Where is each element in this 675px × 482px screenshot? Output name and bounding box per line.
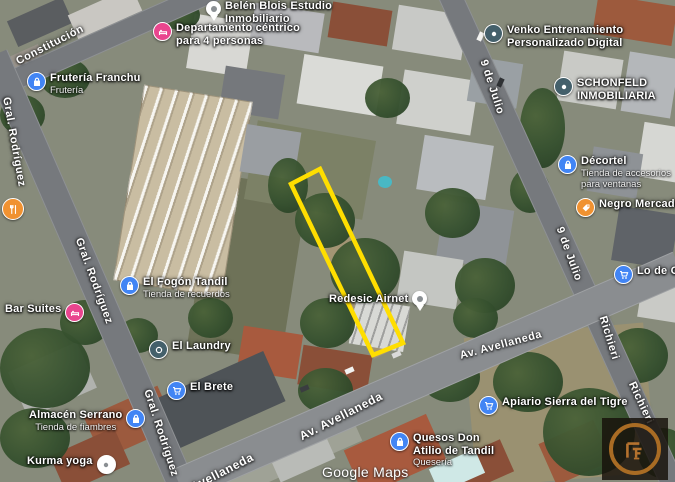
shop-bag-icon[interactable] <box>390 432 409 451</box>
laundry-icon[interactable] <box>149 340 168 359</box>
place-title[interactable]: Apiario Sierra del Tigre <box>502 396 628 409</box>
place-apiario-sierra-del-tigre[interactable]: Apiario Sierra del Tigre <box>479 396 628 415</box>
terrain-patch <box>378 176 392 188</box>
place-title[interactable]: Quesos Don <box>413 432 494 445</box>
place-title-line2[interactable]: para 4 personas <box>176 35 300 48</box>
place-title[interactable]: Kurma yoga <box>27 455 93 468</box>
place-title[interactable]: Venko Entrenamiento <box>507 24 623 37</box>
place-title[interactable]: Lo de Oli <box>637 265 675 278</box>
shop-tag-icon[interactable] <box>576 198 595 217</box>
place-title[interactable]: El Fogón Tandil <box>143 276 230 289</box>
map-pin-icon[interactable] <box>412 291 427 306</box>
place-el-fogon-tandil[interactable]: El Fogón Tandil Tienda de recuerdos <box>120 276 230 300</box>
restaurant-icon[interactable] <box>2 198 24 220</box>
place-title[interactable]: Bar Suites <box>5 303 61 316</box>
place-title[interactable]: El Laundry <box>172 340 231 353</box>
tree-canopy <box>365 78 410 118</box>
place-redesic-airnet[interactable]: Redesic Airnet <box>329 293 427 306</box>
place-subtitle: Frutería <box>50 85 141 96</box>
shop-bag-icon[interactable] <box>27 72 46 91</box>
shop-bag-icon[interactable] <box>120 276 139 295</box>
shopping-cart-icon[interactable] <box>167 381 186 400</box>
place-lo-de-oli[interactable]: Lo de Oli <box>614 265 675 284</box>
place-venko-entrenamiento[interactable]: Venko Entrenamiento Personalizado Digita… <box>484 24 623 49</box>
place-bar-suites[interactable]: Bar Suites <box>5 303 84 322</box>
place-subtitle: Tienda de recuerdos <box>143 289 230 300</box>
terrain-patch <box>349 298 411 352</box>
place-title[interactable]: Almacén Serrano <box>29 409 122 422</box>
place-title[interactable]: SCHONFELD <box>577 77 656 90</box>
generic-place-icon[interactable] <box>97 455 116 474</box>
place-title[interactable]: Redesic Airnet <box>329 293 408 306</box>
shop-bag-icon[interactable] <box>558 155 577 174</box>
shopping-cart-icon[interactable] <box>479 396 498 415</box>
place-el-brete[interactable]: El Brete <box>167 381 233 400</box>
shopping-cart-icon[interactable] <box>614 265 633 284</box>
place-title-line2[interactable]: INMOBILIARIA <box>577 90 656 103</box>
place-title[interactable]: Belén Blois Estudio <box>225 0 332 13</box>
shop-bag-icon[interactable] <box>126 409 145 428</box>
place-negro-mercado[interactable]: Negro Mercado C <box>576 198 675 217</box>
business-dot-icon[interactable] <box>554 77 573 96</box>
place-title-line2[interactable]: Atilio de Tandil <box>413 445 494 458</box>
place-fruteria-franchu[interactable]: Frutería Franchu Frutería <box>27 72 141 96</box>
map-pin-icon[interactable] <box>206 1 221 16</box>
terrain-patch <box>328 2 393 47</box>
place-decortel[interactable]: Décortel Tienda de accesorios para venta… <box>558 155 671 190</box>
place-almacen-serrano[interactable]: Almacén Serrano Tienda de fiambres <box>29 409 145 433</box>
terrain-patch <box>391 350 401 358</box>
place-title[interactable]: Negro Mercado C <box>599 198 675 211</box>
business-dot-icon[interactable] <box>484 24 503 43</box>
place-kurma-yoga[interactable]: Kurma yoga <box>27 455 116 474</box>
place-subtitle: Tienda de accesorios <box>581 168 671 179</box>
tree-canopy <box>295 193 355 248</box>
place-subtitle-line2: para ventanas <box>581 179 671 190</box>
place-title[interactable]: Departamento céntrico <box>176 22 300 35</box>
tree-canopy <box>188 298 233 338</box>
tree-canopy <box>425 188 480 238</box>
lodging-icon[interactable] <box>65 303 84 322</box>
place-restaurant-unlabeled[interactable] <box>2 198 24 220</box>
google-maps-attribution: Google Maps <box>322 464 409 480</box>
place-departamento-centrico[interactable]: Departamento céntrico para 4 personas <box>153 22 300 47</box>
place-title[interactable]: Frutería Franchu <box>50 72 141 85</box>
brand-monogram-icon <box>609 423 661 475</box>
lodging-icon[interactable] <box>153 22 172 41</box>
brand-watermark-logo <box>602 418 668 480</box>
place-title[interactable]: El Brete <box>190 381 233 394</box>
place-subtitle: Quesería <box>413 457 494 468</box>
place-title-line2[interactable]: Personalizado Digital <box>507 37 623 50</box>
satellite-map-canvas[interactable]: Constitución Gral. Rodríguez Gral. Rodrí… <box>0 0 675 482</box>
place-title[interactable]: Décortel <box>581 155 671 168</box>
place-schonfeld-inmobiliaria[interactable]: SCHONFELD INMOBILIARIA <box>554 77 656 102</box>
place-quesos-don-atilio[interactable]: Quesos Don Atilio de Tandil Quesería <box>390 432 494 468</box>
place-subtitle: Tienda de fiambres <box>29 422 122 433</box>
place-el-laundry[interactable]: El Laundry <box>149 340 231 359</box>
